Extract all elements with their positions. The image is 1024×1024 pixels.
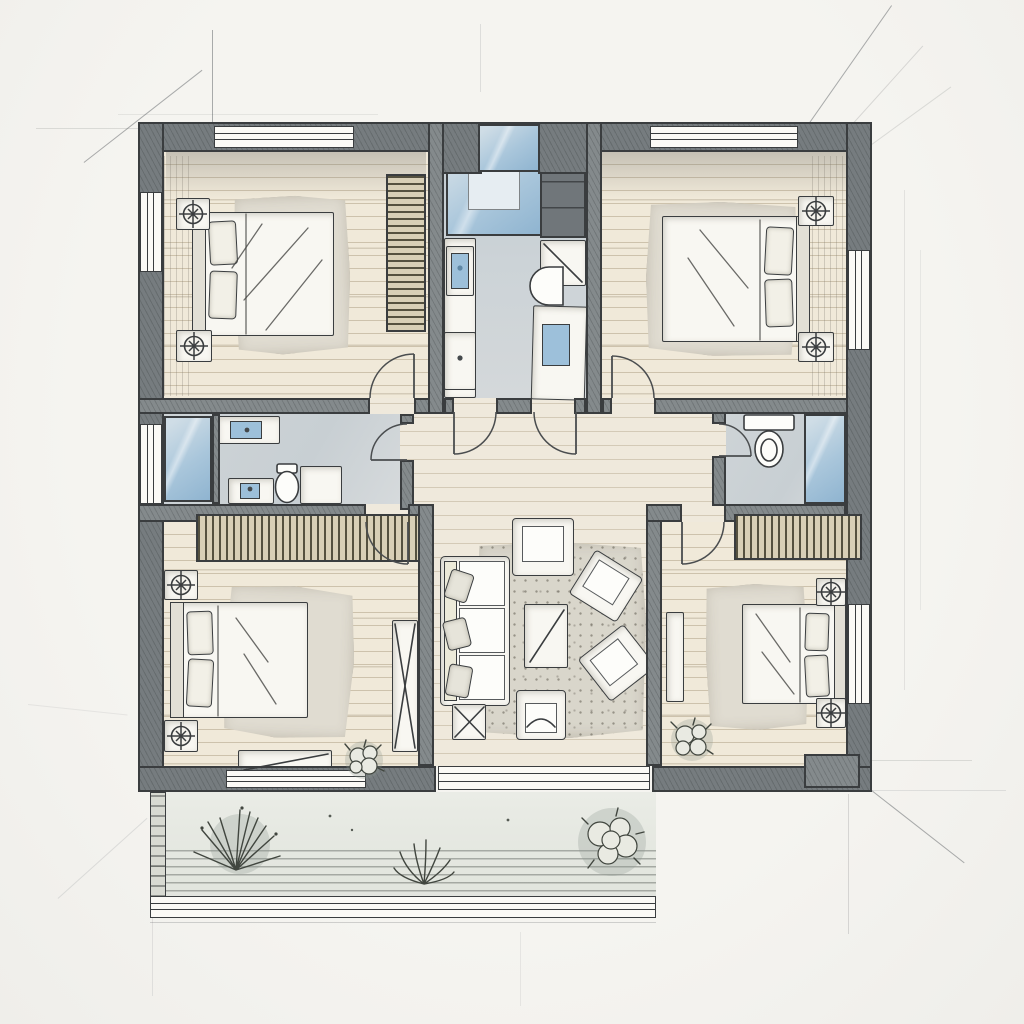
bed-headboard (170, 602, 184, 718)
sketch-line (480, 24, 481, 92)
floor-plan-canvas (0, 0, 1024, 1024)
tall-wardrobe (392, 620, 418, 752)
entry-skylight (478, 124, 540, 172)
louvered-closet (196, 514, 420, 562)
louvered-closet (734, 514, 862, 560)
sketch-line (904, 190, 905, 690)
ottoman (452, 704, 486, 740)
armchair-seat (590, 638, 639, 686)
double-bed (742, 604, 846, 704)
sketch-line (58, 818, 148, 899)
sketch-line (152, 918, 153, 996)
coffee-table (524, 604, 568, 668)
double-bed (192, 212, 334, 336)
shower-enclosure (164, 416, 212, 502)
wall-segment (400, 414, 414, 424)
bed-pillow (208, 220, 238, 265)
nightstand (164, 720, 198, 752)
shelf-unit (540, 240, 586, 286)
bed-headboard (834, 604, 846, 704)
wall-segment (212, 414, 220, 504)
wall-segment (654, 398, 848, 414)
wall-segment (138, 398, 370, 414)
sketch-line (118, 114, 378, 115)
armchair (512, 518, 574, 576)
double-bed (170, 602, 308, 718)
chair-seat (525, 703, 557, 733)
bed-pillow (186, 611, 214, 656)
patio-decking (150, 850, 656, 898)
wall-segment (712, 412, 726, 424)
armchair-seat (582, 559, 629, 605)
window (848, 604, 870, 704)
wall-segment (444, 398, 454, 414)
shower-enclosure (804, 414, 846, 504)
bed-pillow (804, 613, 829, 652)
wall-segment (602, 398, 612, 414)
sink-bowl (240, 483, 260, 499)
bed-headboard (192, 212, 206, 336)
patio-edge-band (150, 896, 656, 918)
window (650, 126, 798, 148)
sofa (440, 556, 510, 706)
sketch-line (856, 790, 1006, 791)
armchair-seat (522, 526, 564, 562)
bed-headboard (796, 216, 810, 342)
bed-pillow (764, 279, 794, 328)
side-chair (516, 690, 566, 740)
double-bed (662, 216, 810, 342)
vanity-sink (542, 324, 570, 366)
sink-bowl (451, 253, 469, 289)
patio-threshold (438, 766, 650, 790)
sketch-line (920, 250, 921, 610)
shower-tray (300, 466, 342, 504)
sketch-line (799, 5, 892, 137)
sketch-line (36, 128, 141, 129)
sketch-line (848, 794, 849, 934)
window (214, 126, 354, 148)
window (140, 192, 162, 272)
wall-segment (418, 504, 434, 766)
wall-segment (428, 122, 444, 414)
bed-pillow (804, 654, 830, 697)
wall-segment (646, 504, 682, 522)
nightstand (798, 332, 834, 362)
sink-bowl (230, 421, 262, 439)
sketch-line (520, 932, 521, 1006)
nightstand (798, 196, 834, 226)
window (848, 250, 870, 350)
bed-pillow (764, 226, 794, 275)
wall-segment (646, 504, 662, 766)
wall-segment (414, 398, 430, 414)
outdoor-bench (804, 754, 860, 788)
nightstand (164, 570, 198, 600)
nightstand (176, 330, 212, 362)
nightstand (176, 198, 210, 230)
skylight-panel (468, 168, 520, 210)
wall-segment (496, 398, 532, 414)
wall-segment (400, 460, 414, 510)
nightstand (816, 698, 846, 728)
sink-basin (444, 332, 476, 390)
glazed-sliding-door (226, 770, 366, 788)
window (140, 424, 162, 504)
sketch-line (28, 704, 128, 716)
bed-pillow (208, 271, 238, 320)
wall-console (666, 612, 684, 702)
wall-segment (586, 122, 602, 414)
nightstand (816, 578, 846, 606)
louvered-wardrobe (386, 174, 426, 332)
wall-segment (574, 398, 586, 414)
sketch-line (150, 922, 656, 923)
wall-segment (712, 456, 726, 506)
bed-pillow (186, 658, 214, 707)
